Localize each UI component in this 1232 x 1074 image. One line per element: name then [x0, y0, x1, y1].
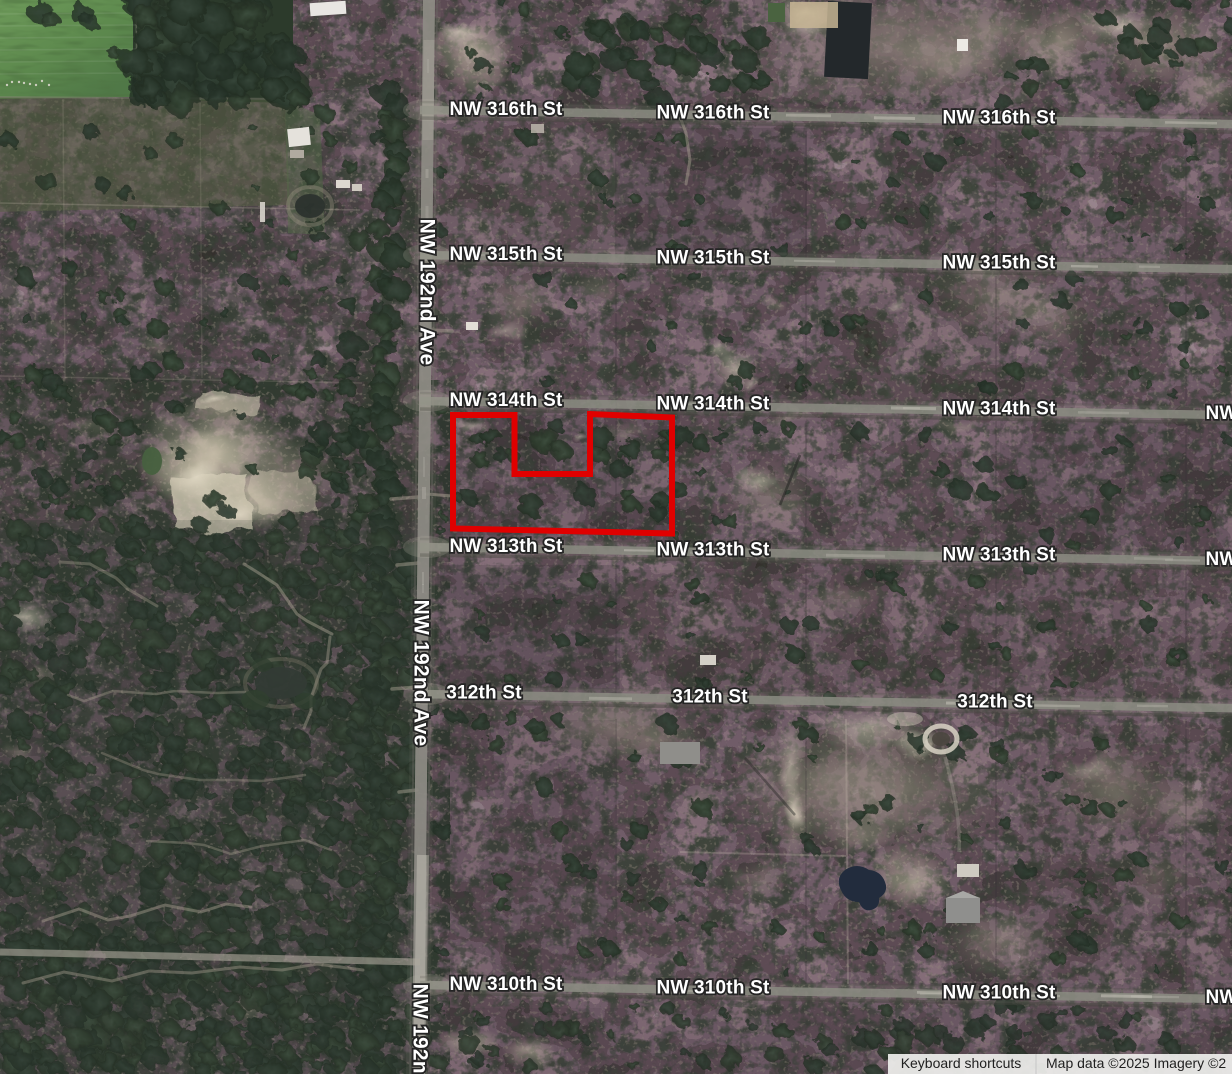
svg-text:NW 192nd Ave: NW 192nd Ave — [416, 219, 439, 366]
svg-text:312th St: 312th St — [957, 692, 1033, 713]
svg-text:NW 310th St: NW 310th St — [1205, 987, 1232, 1008]
svg-text:NW 314th St: NW 314th St — [449, 390, 563, 411]
svg-text:NW 313th St: NW 313th St — [656, 540, 770, 561]
svg-text:NW 314th St: NW 314th St — [656, 394, 770, 415]
svg-text:NW 316th St: NW 316th St — [656, 103, 770, 124]
svg-text:Map data ©2025 Imagery ©2: Map data ©2025 Imagery ©2 — [1046, 1055, 1226, 1071]
svg-text:NW 310th St: NW 310th St — [449, 974, 563, 995]
svg-text:NW 316th St: NW 316th St — [942, 108, 1056, 129]
svg-text:Keyboard shortcuts: Keyboard shortcuts — [901, 1055, 1022, 1071]
svg-text:NW 315th St: NW 315th St — [942, 253, 1056, 274]
svg-text:NW 310th St: NW 310th St — [656, 978, 770, 999]
svg-text:NW 315th St: NW 315th St — [656, 248, 770, 269]
svg-text:NW 315th St: NW 315th St — [449, 244, 563, 265]
svg-text:NW 310th St: NW 310th St — [942, 983, 1056, 1004]
svg-text:NW 314th St: NW 314th St — [1205, 403, 1232, 424]
svg-text:NW 314th St: NW 314th St — [942, 399, 1056, 420]
svg-text:NW 313th St: NW 313th St — [449, 536, 563, 557]
svg-text:312th St: 312th St — [446, 683, 522, 704]
svg-text:NW 192nd Ave: NW 192nd Ave — [410, 600, 433, 747]
svg-text:NW 313th St: NW 313th St — [942, 545, 1056, 566]
svg-text:NW 192nd Ave: NW 192nd Ave — [409, 984, 432, 1074]
svg-text:312th St: 312th St — [672, 687, 748, 708]
svg-text:NW 316th St: NW 316th St — [449, 99, 563, 120]
svg-text:NW 313th St: NW 313th St — [1205, 549, 1232, 570]
